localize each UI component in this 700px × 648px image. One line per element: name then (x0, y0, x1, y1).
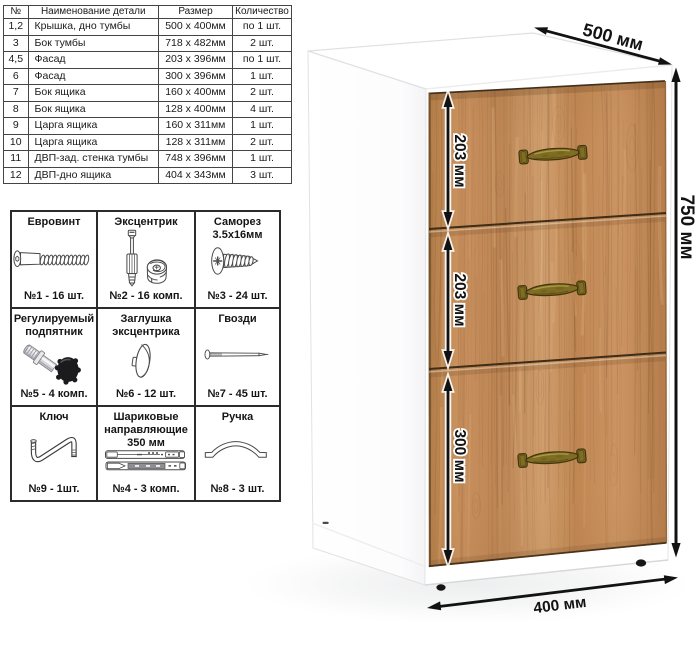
svg-text:750 мм: 750 мм (676, 194, 697, 259)
svg-text:300 мм: 300 мм (451, 429, 468, 482)
svg-text:203 мм: 203 мм (451, 273, 468, 326)
svg-text:203 мм: 203 мм (451, 134, 468, 187)
